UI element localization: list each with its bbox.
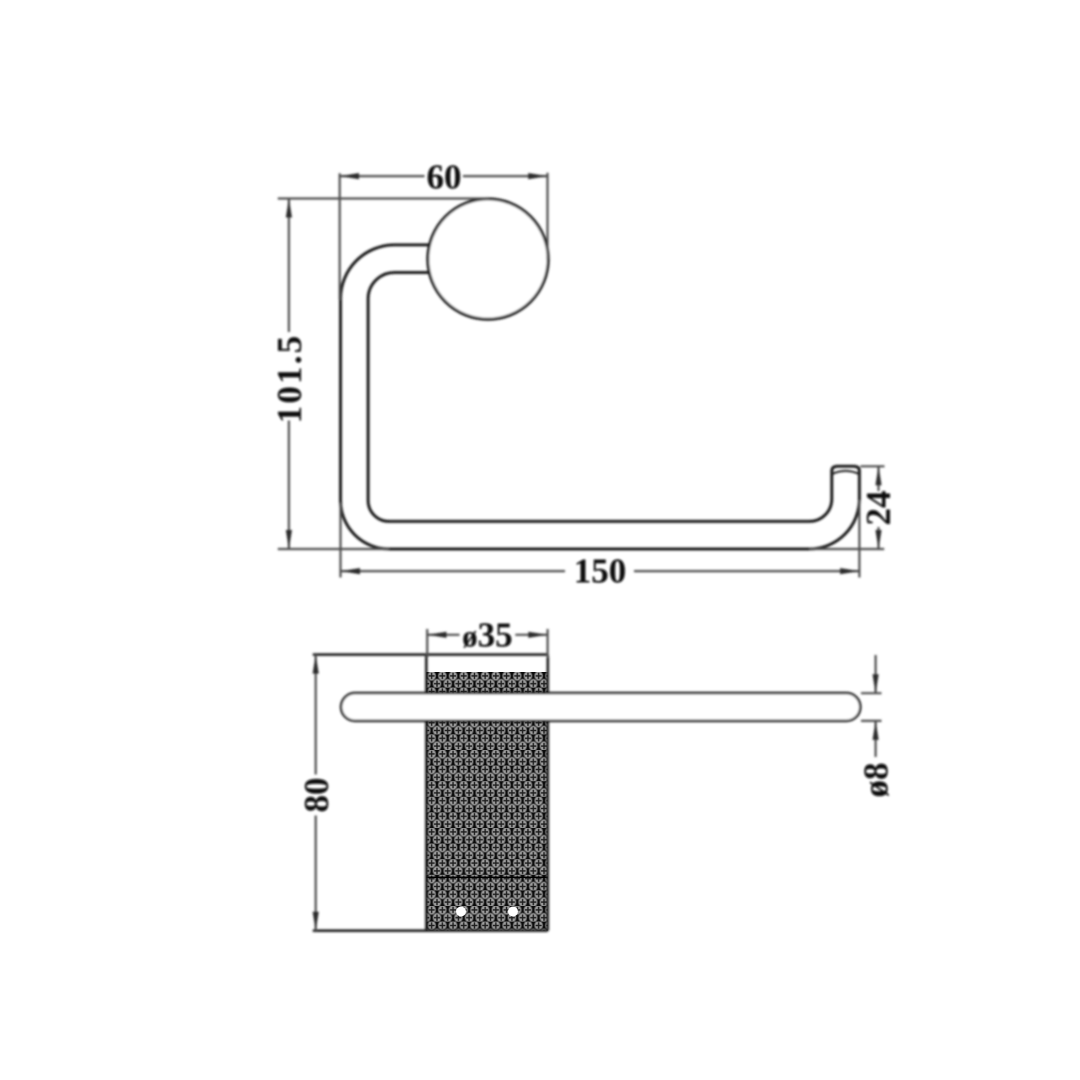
- svg-text:24: 24: [859, 491, 898, 526]
- svg-text:150: 150: [574, 552, 627, 591]
- svg-text:80: 80: [297, 778, 336, 813]
- svg-text:60: 60: [427, 158, 462, 197]
- svg-text:ø35: ø35: [462, 616, 513, 655]
- svg-text:101.5: 101.5: [270, 334, 309, 424]
- svg-text:ø8: ø8: [857, 763, 896, 798]
